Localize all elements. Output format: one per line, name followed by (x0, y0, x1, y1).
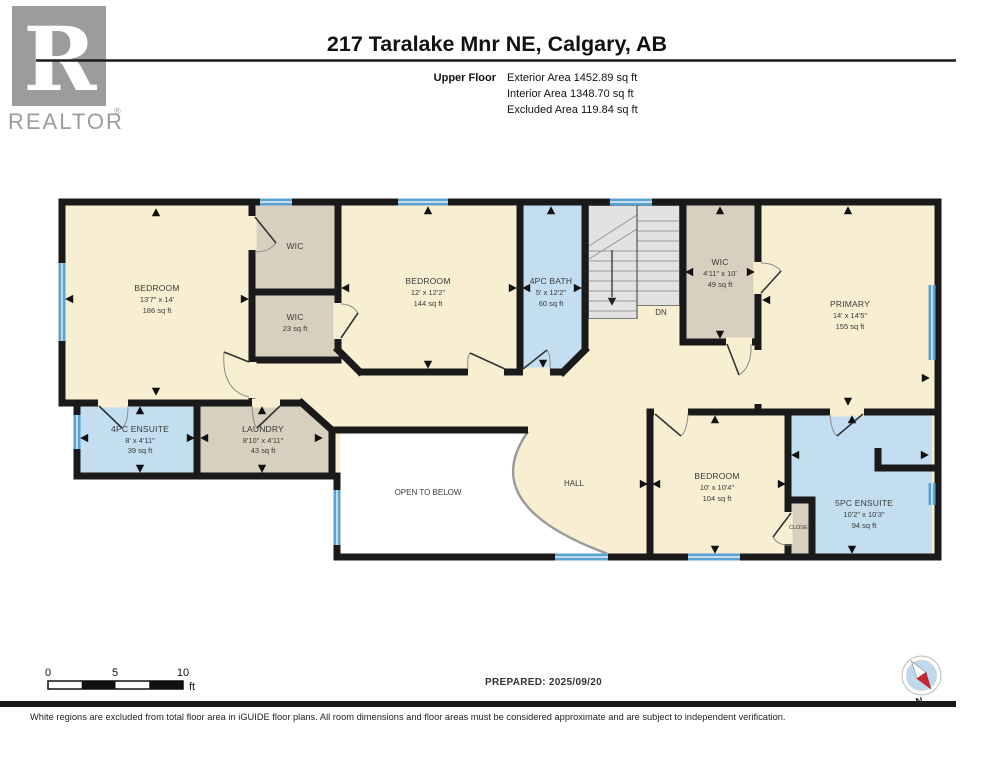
door-gap (523, 368, 550, 377)
exterior-area: Exterior Area 1452.89 sq ft (507, 72, 637, 84)
compass: N (902, 656, 941, 708)
floor-plan: BEDROOM 13'7" x 14' 186 sq ft WIC WIC 23… (59, 199, 939, 561)
scale-bar-segment (149, 681, 183, 689)
door-gap (654, 408, 688, 417)
scale-5: 5 (112, 667, 118, 679)
disclaimer-text: White regions are excluded from total fl… (30, 712, 786, 722)
door-gap (334, 303, 343, 339)
ensuite4-dims: 8' x 4'11" (125, 436, 155, 445)
scale-10: 10 (177, 667, 189, 679)
door-gap (252, 399, 280, 408)
scale-unit: ft (189, 681, 195, 693)
wic-small-area: 23 sq ft (283, 324, 309, 333)
laundry-dims: 8'10" x 4'11" (243, 436, 284, 445)
scale-bar-segment (82, 681, 116, 689)
laundry-label: LAUNDRY (242, 424, 284, 434)
door-gap (830, 408, 864, 417)
door-gap (726, 338, 752, 347)
bath-dims: 5' x 12'2" (536, 288, 566, 297)
ensuite4-area: 39 sq ft (128, 446, 154, 455)
wic-right-label: WIC (711, 257, 728, 267)
footer-divider (0, 701, 956, 707)
stairs (589, 206, 680, 319)
open-to-below-label: OPEN TO BELOW (395, 488, 462, 497)
stairs-area (589, 206, 680, 319)
bedroom-br-area: 104 sq ft (703, 494, 733, 503)
wic-top-label: WIC (286, 241, 303, 251)
bath-label: 4PC BATH (530, 276, 573, 286)
scale-bar: 0 5 10 ft (45, 667, 195, 693)
door-gap (98, 399, 128, 408)
realtor-logo-reg: ® (114, 106, 121, 116)
closet-label: CLOSET (789, 525, 812, 531)
ensuite4-label: 4PC ENSUITE (111, 424, 169, 434)
excluded-area: Excluded Area 119.84 sq ft (507, 104, 638, 116)
bath-area: 60 sq ft (539, 299, 565, 308)
door-gap (248, 362, 257, 398)
page-title: 217 Taralake Mnr NE, Calgary, AB (327, 32, 667, 56)
bedroom-left-label: BEDROOM (134, 283, 179, 293)
hall-label: HALL (564, 479, 585, 488)
header: R REALTOR ® 217 Taralake Mnr NE, Calgary… (8, 6, 956, 134)
primary-area: 155 sq ft (836, 322, 866, 331)
floor-plan-page: R REALTOR ® 217 Taralake Mnr NE, Calgary… (0, 0, 994, 768)
door-gap (754, 262, 763, 294)
realtor-logo-text: REALTOR (8, 109, 124, 134)
bedroom-mid-label: BEDROOM (405, 276, 450, 286)
scale-0: 0 (45, 667, 51, 679)
primary-dims: 14' x 14'5" (833, 311, 868, 320)
door-gap (754, 350, 763, 404)
laundry-area: 43 sq ft (251, 446, 277, 455)
bedroom-br-label: BEDROOM (694, 471, 739, 481)
realtor-logo-r-icon: R (23, 7, 97, 111)
ensuite5-area: 94 sq ft (852, 521, 878, 530)
footer: 0 5 10 ft PREPARED: 2025/09/20 N White r… (0, 656, 956, 722)
ensuite5-label: 5PC ENSUITE (835, 498, 893, 508)
ensuite5-dims: 10'2" x 10'3" (843, 510, 884, 519)
bedroom-mid-dims: 12' x 12'2" (411, 288, 446, 297)
bedroom-left-area: 186 sq ft (143, 306, 173, 315)
stairs-dn-label: DN (655, 308, 667, 317)
wic-right-area: 49 sq ft (708, 280, 734, 289)
wic-right-dims: 4'11" x 10' (703, 269, 737, 278)
primary-label: PRIMARY (830, 299, 870, 309)
door-gap (248, 216, 257, 250)
interior-area: Interior Area 1348.70 sq ft (507, 88, 634, 100)
bedroom-br-dims: 10' x 10'4" (700, 483, 735, 492)
wic-small-label: WIC (286, 312, 303, 322)
floor-label: Upper Floor (434, 72, 497, 84)
door-gap (468, 368, 504, 377)
prepared-date: PREPARED: 2025/09/20 (485, 677, 602, 688)
bedroom-mid-area: 144 sq ft (414, 299, 444, 308)
floor-plan-svg: R REALTOR ® 217 Taralake Mnr NE, Calgary… (0, 0, 994, 768)
bedroom-left-dims: 13'7" x 14' (140, 295, 175, 304)
